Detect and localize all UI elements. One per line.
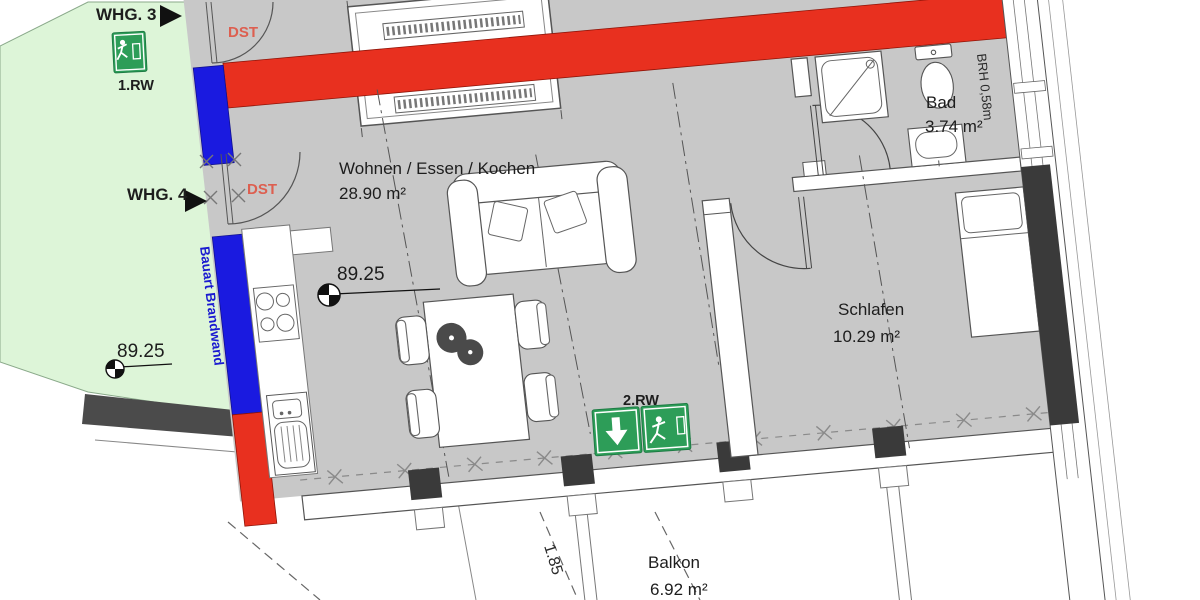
- bathroom-label: Bad: [926, 93, 956, 112]
- kitchen-sink: [266, 392, 315, 475]
- stove: [253, 285, 299, 342]
- bedroom-area: 10.29 m²: [833, 327, 900, 346]
- floor-plan-page: WHG. 3 1.RW DST WHG. 4 DST Bauart Brandw…: [0, 0, 1200, 600]
- rw2-label: 2.RW: [623, 393, 659, 409]
- balcony-dividers: [575, 486, 913, 600]
- bedroom-label: Schlafen: [838, 300, 904, 319]
- exit-sign-icon: [112, 31, 147, 73]
- dst-middle-label: DST: [247, 181, 277, 198]
- whg3-label: WHG. 3: [96, 5, 156, 24]
- living-room-area: 28.90 m²: [339, 184, 406, 203]
- elevation-left-value: 89.25: [117, 341, 165, 362]
- floor-plan-drawing: WHG. 3 1.RW DST WHG. 4 DST Bauart Brandw…: [0, 0, 1200, 600]
- balcony-depth-dimension: 1.85: [540, 542, 565, 577]
- shower: [815, 51, 888, 123]
- balcony-area: 6.92 m²: [650, 580, 708, 599]
- balcony-dimension-lines: [228, 512, 700, 600]
- whg4-label: WHG. 4: [127, 185, 188, 204]
- living-room-label: Wohnen / Essen / Kochen: [339, 159, 535, 178]
- bathroom-left-wall: [791, 58, 811, 97]
- dst-top-label: DST: [228, 24, 258, 41]
- balcony-label: Balkon: [648, 553, 700, 572]
- bathroom-area: 3.74 m²: [925, 117, 983, 136]
- sofa: [445, 160, 637, 288]
- rw1-label: 1.RW: [118, 78, 154, 94]
- elevation-main-value: 89.25: [337, 264, 385, 285]
